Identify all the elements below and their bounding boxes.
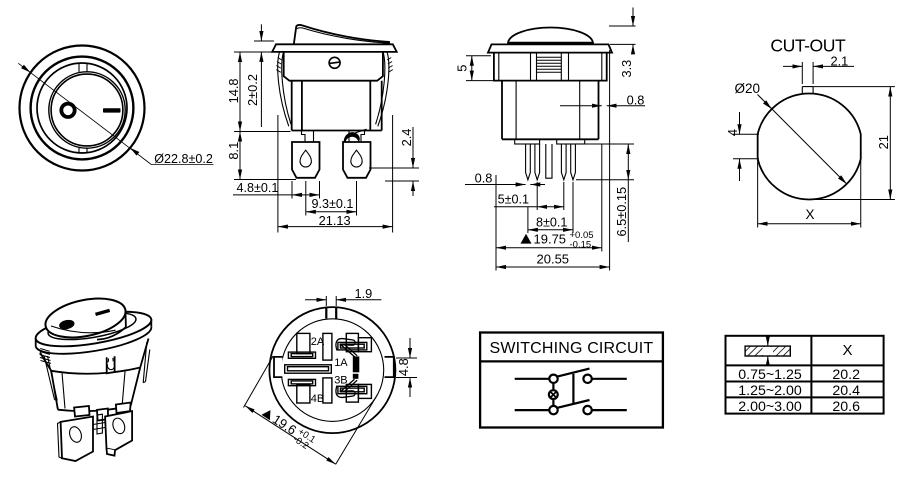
svg-text:1.9: 1.9 xyxy=(355,286,373,301)
svg-text:CUT-OUT: CUT-OUT xyxy=(770,35,846,55)
svg-text:SWITCHING CIRCUIT: SWITCHING CIRCUIT xyxy=(490,340,654,357)
svg-text:4.8: 4.8 xyxy=(396,358,411,376)
svg-text:9.3±0.1: 9.3±0.1 xyxy=(312,197,354,211)
svg-text:20.6: 20.6 xyxy=(832,399,860,415)
svg-text:21: 21 xyxy=(876,135,891,149)
svg-text:2.4: 2.4 xyxy=(399,129,414,147)
svg-text:20.4: 20.4 xyxy=(832,383,860,399)
svg-text:2.1: 2.1 xyxy=(831,53,849,68)
svg-text:14.8: 14.8 xyxy=(226,78,241,103)
svg-text:2A: 2A xyxy=(311,336,325,348)
svg-text:1A: 1A xyxy=(334,357,348,369)
svg-text:19.75: 19.75 xyxy=(534,232,567,247)
svg-text:8.1: 8.1 xyxy=(226,142,241,160)
svg-text:8±0.1: 8±0.1 xyxy=(536,215,567,229)
svg-text:1.25~2.00: 1.25~2.00 xyxy=(738,383,802,399)
svg-text:5: 5 xyxy=(455,65,470,72)
svg-text:5±0.1: 5±0.1 xyxy=(498,192,529,206)
svg-text:4: 4 xyxy=(725,129,740,136)
svg-text:20.2: 20.2 xyxy=(832,367,860,383)
svg-text:4B: 4B xyxy=(311,393,324,405)
svg-text:0.8: 0.8 xyxy=(475,170,493,185)
svg-text:Ø20: Ø20 xyxy=(735,81,761,96)
svg-text:4.8±0.1: 4.8±0.1 xyxy=(237,181,279,195)
svg-text:20.55: 20.55 xyxy=(537,252,570,267)
svg-text:0.8: 0.8 xyxy=(627,93,645,108)
svg-text:21.13: 21.13 xyxy=(319,213,351,228)
svg-text:2.00~3.00: 2.00~3.00 xyxy=(738,399,802,415)
svg-text:2±0.2: 2±0.2 xyxy=(245,74,260,106)
svg-text:X: X xyxy=(805,207,814,222)
svg-text:X: X xyxy=(842,342,852,359)
svg-text:0.75~1.25: 0.75~1.25 xyxy=(738,367,802,383)
svg-text:19.6: 19.6 xyxy=(270,411,299,437)
svg-text:3B: 3B xyxy=(334,375,347,387)
svg-text:Ø22.8±0.2: Ø22.8±0.2 xyxy=(154,152,213,166)
svg-text:3.3: 3.3 xyxy=(619,60,634,78)
svg-text:-0.15: -0.15 xyxy=(570,240,592,251)
svg-text:6.5±0.15: 6.5±0.15 xyxy=(614,187,629,237)
